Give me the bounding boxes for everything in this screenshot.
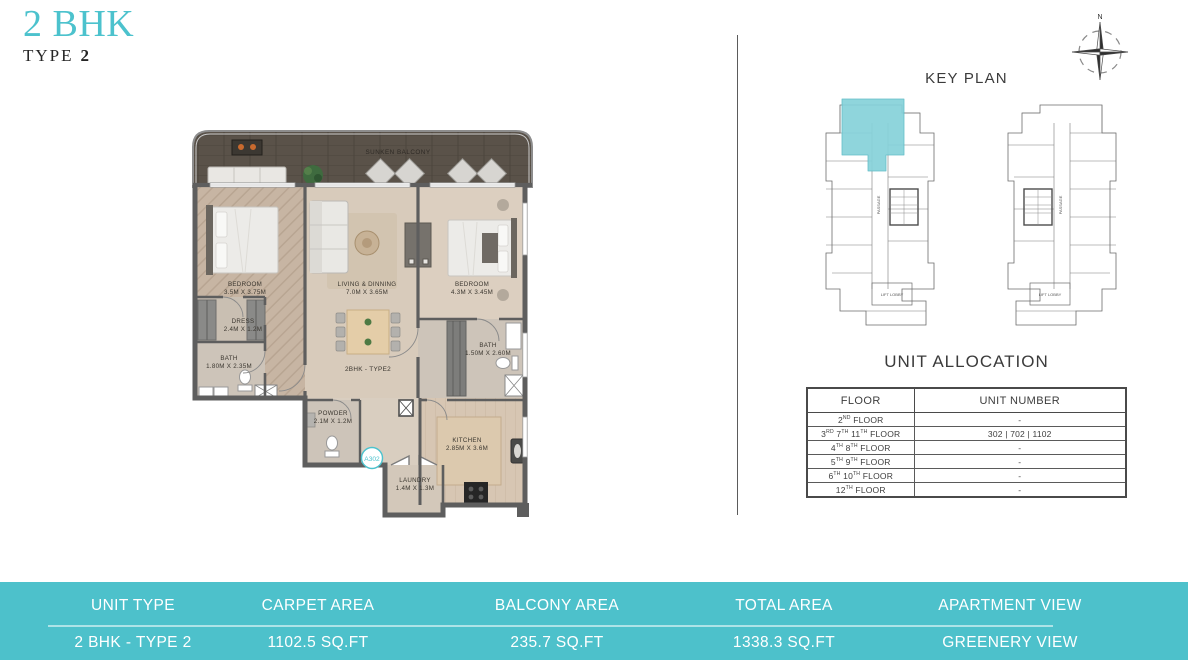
allocation-unit-cell: 302 | 702 | 1102 xyxy=(914,427,1126,441)
allocation-unit-cell: - xyxy=(914,441,1126,455)
allocation-floor-cell: 2ND FLOOR xyxy=(807,413,914,427)
room-label: BATH xyxy=(479,342,496,349)
room-dims: 2.1M X 1.2M xyxy=(314,418,352,425)
summary-column-header: APARTMENT VIEW xyxy=(938,597,1081,615)
balcony-windows xyxy=(193,183,532,187)
room-dims: 2.85M X 3.6M xyxy=(446,445,488,452)
balcony-sofa xyxy=(208,167,286,185)
room-label: BEDROOM xyxy=(455,281,489,288)
room-dims: 1.80M X 2.35M xyxy=(206,363,252,370)
summary-column-apartment-view: APARTMENT VIEWGREENERY VIEW xyxy=(938,582,1081,652)
room-dims: 4.3M X 3.45M xyxy=(451,289,493,296)
plan-type-label: 2BHK - TYPE2 xyxy=(345,366,391,373)
allocation-unit-cell: - xyxy=(914,469,1126,483)
room-label: KITCHEN xyxy=(452,437,481,444)
allocation-floor-cell: 5TH 9TH FLOOR xyxy=(807,455,914,469)
room-label: BATH xyxy=(220,355,237,362)
summary-column-total-area: TOTAL AREA1338.3 SQ.FT xyxy=(733,582,835,652)
summary-column-header: TOTAL AREA xyxy=(733,597,835,615)
unit-allocation-table: FLOOR UNIT NUMBER 2ND FLOOR-3RD 7TH 11TH… xyxy=(806,387,1127,498)
summary-column-value: 2 BHK - TYPE 2 xyxy=(74,634,191,652)
keyplan-tower-left: PASSAGE LIFT LOBBY xyxy=(806,93,958,340)
room-label: LIVING & DINNING xyxy=(338,281,397,288)
summary-column-value: GREENERY VIEW xyxy=(938,634,1081,652)
room-label: POWDER xyxy=(318,410,348,417)
page-root: { "theme":{"accent_color":"#4cc2cd","bar… xyxy=(0,0,1188,660)
keyplan-tower-right: PASSAGE LIFT LOBBY xyxy=(984,93,1136,340)
living-sofa xyxy=(310,201,348,273)
summary-column-header: UNIT TYPE xyxy=(74,597,191,615)
room-label: DRESS xyxy=(232,318,255,325)
unit-allocation-title: UNIT ALLOCATION xyxy=(806,352,1127,372)
passage-label: PASSAGE xyxy=(876,195,881,214)
summary-bar: UNIT TYPE2 BHK - TYPE 2CARPET AREA1102.5… xyxy=(0,582,1188,660)
allocation-floor-cell: 12TH FLOOR xyxy=(807,483,914,498)
allocation-header-floor: FLOOR xyxy=(807,388,914,413)
summary-column-header: CARPET AREA xyxy=(262,597,375,615)
room-dims: 2.4M X 1.2M xyxy=(224,326,262,333)
summary-column-carpet-area: CARPET AREA1102.5 SQ.FT xyxy=(262,582,375,652)
room-dims: 7.0M X 3.65M xyxy=(346,289,388,296)
allocation-unit-cell: - xyxy=(914,455,1126,469)
page-title: 2 BHK xyxy=(23,4,134,44)
allocation-header-unit: UNIT NUMBER xyxy=(914,388,1126,413)
page-subtitle: TYPE2 xyxy=(23,46,134,66)
lift-lobby-label: LIFT LOBBY xyxy=(1039,292,1062,297)
lift-lobby-label: LIFT LOBBY xyxy=(881,292,904,297)
allocation-row: 3RD 7TH 11TH FLOOR302 | 702 | 1102 xyxy=(807,427,1126,441)
room-dims: 1.50M X 2.60M xyxy=(465,350,511,357)
allocation-unit-cell: - xyxy=(914,413,1126,427)
summary-column-value: 235.7 SQ.FT xyxy=(495,634,619,652)
vertical-divider xyxy=(737,35,738,515)
room-label-balcony: SUNKEN BALCONY xyxy=(365,149,430,156)
allocation-row: 2ND FLOOR- xyxy=(807,413,1126,427)
allocation-floor-cell: 3RD 7TH 11TH FLOOR xyxy=(807,427,914,441)
subtitle-number: 2 xyxy=(81,46,90,65)
room-label: BEDROOM xyxy=(228,281,262,288)
allocation-floor-cell: 4TH 8TH FLOOR xyxy=(807,441,914,455)
summary-column-unit-type: UNIT TYPE2 BHK - TYPE 2 xyxy=(74,582,191,652)
room-dims: 3.5M X 3.75M xyxy=(224,289,266,296)
passage-label: PASSAGE xyxy=(1058,195,1063,214)
summary-column-balcony-area: BALCONY AREA235.7 SQ.FT xyxy=(495,582,619,652)
unit-allocation-body: 2ND FLOOR-3RD 7TH 11TH FLOOR302 | 702 | … xyxy=(807,413,1126,498)
allocation-row: 12TH FLOOR- xyxy=(807,483,1126,498)
summary-column-value: 1102.5 SQ.FT xyxy=(262,634,375,652)
unit-badge: A302 xyxy=(362,448,383,469)
allocation-row: 4TH 8TH FLOOR- xyxy=(807,441,1126,455)
allocation-row: 6TH 10TH FLOOR- xyxy=(807,469,1126,483)
room-dims: 1.4M X 1.3M xyxy=(396,485,434,492)
room-label: LAUNDRY xyxy=(399,477,431,484)
keyplan-title: KEY PLAN xyxy=(806,70,1127,87)
unit-badge-text: A302 xyxy=(364,456,380,463)
floor-plan-drawing: SUNKEN BALCONY xyxy=(185,125,537,523)
page-title-block: 2 BHK TYPE2 xyxy=(23,4,134,66)
floor-plan: SUNKEN BALCONY xyxy=(185,125,537,523)
sunken-balcony: SUNKEN BALCONY xyxy=(193,131,532,188)
summary-column-header: BALCONY AREA xyxy=(495,597,619,615)
summary-column-value: 1338.3 SQ.FT xyxy=(733,634,835,652)
allocation-floor-cell: 6TH 10TH FLOOR xyxy=(807,469,914,483)
balcony-grill xyxy=(232,140,262,155)
subtitle-label: TYPE xyxy=(23,46,74,65)
compass-north-label: N xyxy=(1097,14,1102,21)
allocation-row: 5TH 9TH FLOOR- xyxy=(807,455,1126,469)
bed-left xyxy=(206,205,278,275)
allocation-unit-cell: - xyxy=(914,483,1126,498)
